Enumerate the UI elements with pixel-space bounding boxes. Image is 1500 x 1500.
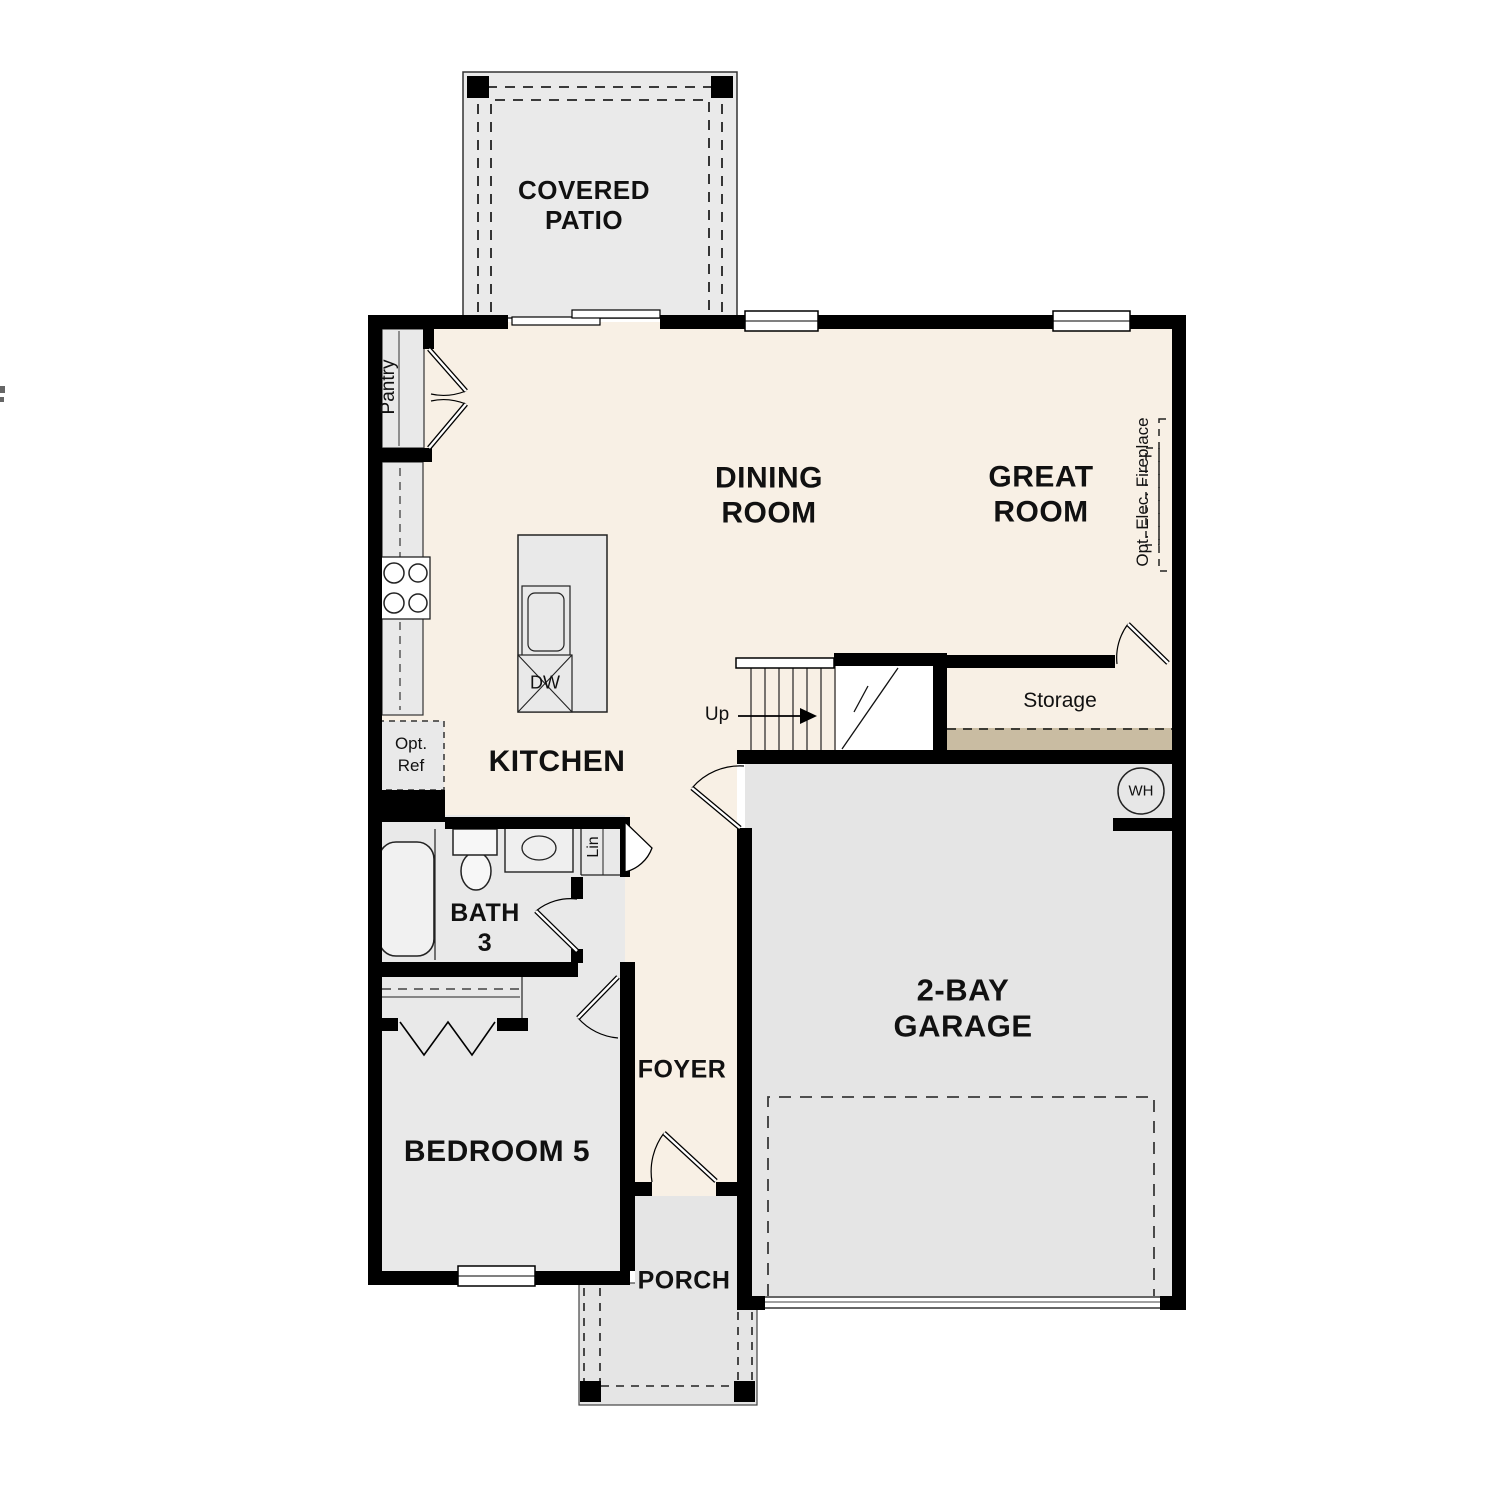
cooktop bbox=[381, 557, 430, 619]
patio-post-icon bbox=[467, 76, 489, 98]
label-bedroom-5: BEDROOM 5 bbox=[404, 1135, 590, 1170]
label-pantry: Pantry bbox=[378, 360, 400, 415]
floor-plan-drawing bbox=[0, 0, 1500, 1500]
label-lin: Lin bbox=[585, 836, 603, 857]
stairs bbox=[736, 658, 933, 750]
stair-railing bbox=[736, 658, 834, 668]
label-opt-elec-fireplace: Opt. Elec. Fireplace bbox=[1133, 417, 1153, 566]
label-kitchen: KITCHEN bbox=[489, 745, 626, 780]
label-foyer: FOYER bbox=[638, 1056, 727, 1085]
porch-post-icon bbox=[580, 1381, 601, 1402]
patio-post-icon bbox=[711, 76, 733, 98]
floor-plan: COVERED PATIO DINING ROOM GREAT ROOM KIT… bbox=[0, 0, 1500, 1500]
label-up: Up bbox=[705, 704, 729, 726]
label-covered-patio: COVERED PATIO bbox=[499, 176, 669, 236]
storage-floor-strip bbox=[947, 728, 1172, 750]
label-porch: PORCH bbox=[638, 1267, 731, 1296]
bathtub bbox=[379, 842, 434, 956]
label-garage: 2-BAY GARAGE bbox=[881, 972, 1046, 1043]
label-bath-3: BATH 3 bbox=[440, 898, 530, 958]
garage-door bbox=[764, 1297, 1162, 1308]
label-opt-ref: Opt. Ref bbox=[385, 733, 437, 777]
label-dw: DW bbox=[530, 673, 560, 694]
label-dining-room: DINING ROOM bbox=[694, 462, 844, 531]
edge-fragment bbox=[0, 386, 5, 402]
label-great-room: GREAT ROOM bbox=[971, 461, 1111, 530]
label-wh: WH bbox=[1129, 782, 1154, 799]
toilet bbox=[461, 852, 491, 890]
porch-post-icon bbox=[734, 1381, 755, 1402]
label-storage: Storage bbox=[1023, 689, 1097, 713]
porch-roof bbox=[579, 1283, 757, 1405]
